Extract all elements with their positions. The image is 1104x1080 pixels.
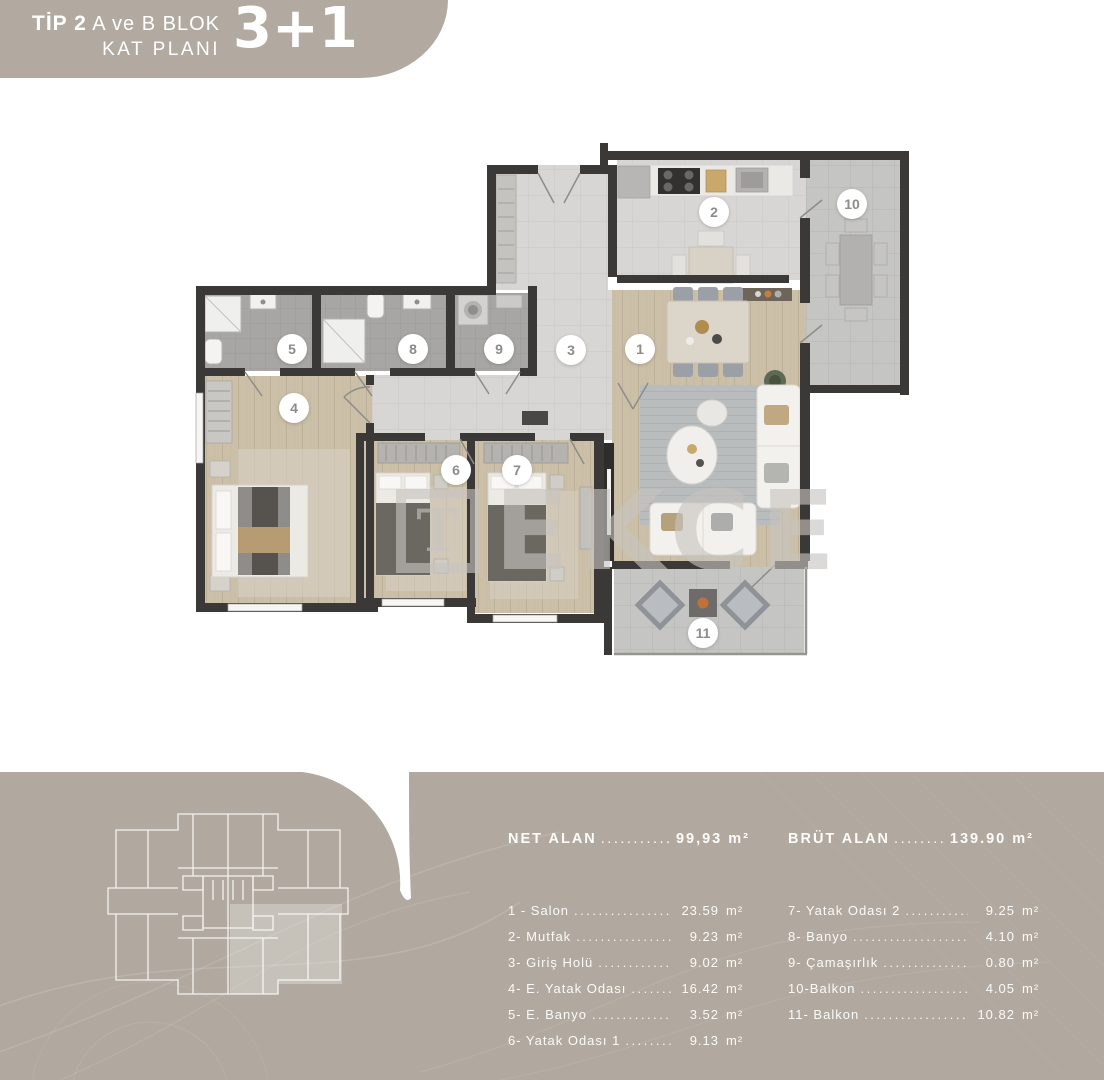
legend-dots: ................................ (574, 903, 672, 918)
legend-room-name: 3- Giriş Holü (508, 955, 593, 970)
legend-area-unit: m² (726, 1033, 750, 1048)
dining-table (667, 287, 749, 377)
legend-right-column: 7- Yatak Odası 2........................… (788, 903, 1046, 1033)
legend-area-unit: m² (1022, 981, 1046, 996)
legend-row: 9- Çamaşırlık...........................… (788, 955, 1046, 981)
room-badge-salon: 1 (625, 334, 655, 364)
room-badge-giris-holu: 3 (556, 335, 586, 365)
legend-dots: ................................ (625, 1033, 672, 1048)
legend-area-unit: m² (726, 929, 750, 944)
room-badge-mutfak: 2 (699, 197, 729, 227)
legend-room-name: 6- Yatak Odası 1 (508, 1033, 620, 1048)
legend-area-unit: m² (726, 955, 750, 970)
room-badge-balkon-11: 11 (688, 618, 718, 648)
legend-room-name: 7- Yatak Odası 2 (788, 903, 900, 918)
entry-closet (496, 175, 516, 283)
room-badge-e-yatak-odasi: 4 (279, 393, 309, 423)
header-text: TİP 2 A ve B BLOK KAT PLANI (14, 12, 220, 61)
gross-area-label: BRÜT ALAN (788, 831, 890, 847)
kitchen-counter (618, 165, 793, 198)
legend-room-name: 9- Çamaşırlık (788, 955, 878, 970)
legend-dots: ................................ (905, 903, 968, 918)
legend-area-unit: m² (1022, 1007, 1046, 1022)
sofa-bottom (650, 503, 756, 555)
legend-area-value: 9.25 (973, 903, 1015, 918)
legend-room-name: 2- Mutfak (508, 929, 571, 944)
gross-area-dots: ......... (894, 831, 946, 847)
legend-row: 10-Balkon...............................… (788, 981, 1046, 1007)
net-area-label: NET ALAN (508, 831, 597, 847)
gross-area-row: BRÜT ALAN ......... 139.90 m² (788, 831, 1034, 847)
band-notch (282, 772, 432, 912)
page: TİP 2 A ve B BLOK KAT PLANI 3+1 (0, 0, 1104, 1080)
room-badge-e-banyo: 5 (277, 334, 307, 364)
gross-area-value: 139.90 m² (950, 831, 1034, 847)
legend-row: 1 - Salon...............................… (508, 903, 750, 929)
legend-area-unit: m² (726, 903, 750, 918)
block-label: A ve B BLOK (92, 13, 220, 35)
legend-room-name: 10-Balkon (788, 981, 856, 996)
room-badge-yatak-odasi-1: 6 (441, 455, 471, 485)
legend-dots: ................................ (631, 981, 672, 996)
legend-dots: ................................ (598, 955, 672, 970)
legend-room-name: 4- E. Yatak Odası (508, 981, 626, 996)
legend-row: 3- Giriş Holü...........................… (508, 955, 750, 981)
legend-left-column: 1 - Salon...............................… (508, 903, 750, 1059)
room-badge-balkon-10: 10 (837, 189, 867, 219)
legend-area-value: 10.82 (973, 1007, 1015, 1022)
legend-row: 2- Mutfak...............................… (508, 929, 750, 955)
legend-room-name: 11- Balkon (788, 1007, 859, 1022)
legend-area-value: 0.80 (973, 955, 1015, 970)
room-badge-yatak-odasi-2: 7 (502, 455, 532, 485)
legend-dots: ................................ (861, 981, 968, 996)
legend-dots: ................................ (576, 929, 672, 944)
legend-row: 8- Banyo................................… (788, 929, 1046, 955)
legend-area-unit: m² (726, 981, 750, 996)
room-badge-camasirlik: 9 (484, 334, 514, 364)
legend-area-value: 9.02 (677, 955, 719, 970)
legend-area-unit: m² (726, 1007, 750, 1022)
unit-type-label: 3+1 (233, 0, 358, 61)
legend-row: 7- Yatak Odası 2........................… (788, 903, 1046, 929)
legend-room-name: 8- Banyo (788, 929, 848, 944)
legend-row: 6- Yatak Odası 1........................… (508, 1033, 750, 1059)
legend-room-name: 1 - Salon (508, 903, 569, 918)
plan-type-title: TİP 2 A ve B BLOK (14, 12, 220, 37)
legend-dots: ................................ (592, 1007, 672, 1022)
legend-area-unit: m² (1022, 955, 1046, 970)
legend-area-value: 4.05 (973, 981, 1015, 996)
net-area-value: 99,93 m² (676, 831, 750, 847)
legend-area-value: 16.42 (677, 981, 719, 996)
legend-area-unit: m² (1022, 903, 1046, 918)
header-badge: TİP 2 A ve B BLOK KAT PLANI 3+1 (0, 0, 448, 78)
legend-area-value: 4.10 (973, 929, 1015, 944)
room-badge-banyo: 8 (398, 334, 428, 364)
legend-area-value: 9.13 (677, 1033, 719, 1048)
legend-row: 11- Balkon..............................… (788, 1007, 1046, 1033)
hall-bench (522, 411, 548, 425)
net-area-dots: ............ (601, 831, 672, 847)
legend-area-value: 9.23 (677, 929, 719, 944)
plan-type-label: TİP 2 (32, 12, 87, 35)
legend-row: 4- E. Yatak Odası.......................… (508, 981, 750, 1007)
legend-area-value: 23.59 (677, 903, 719, 918)
legend-dots: ................................ (883, 955, 968, 970)
legend-area-unit: m² (1022, 929, 1046, 944)
legend-dots: ................................ (864, 1007, 968, 1022)
tv-unit (604, 443, 614, 561)
legend-room-name: 5- E. Banyo (508, 1007, 587, 1022)
legend-area-value: 3.52 (677, 1007, 719, 1022)
sofa-right (757, 385, 800, 508)
floor-plan-label: KAT PLANI (14, 39, 220, 61)
net-area-row: NET ALAN ............ 99,93 m² (508, 831, 750, 847)
legend-dots: ................................ (853, 929, 968, 944)
legend-row: 5- E. Banyo.............................… (508, 1007, 750, 1033)
floor-plan: 1 2 3 4 5 6 7 8 9 10 11 (190, 143, 920, 668)
